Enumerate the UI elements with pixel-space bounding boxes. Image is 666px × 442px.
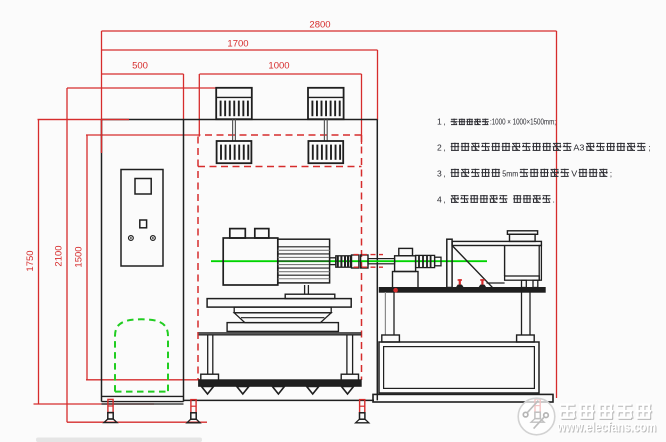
svg-text::1000 × 1000×1500mm;: :1000 × 1000×1500mm; [490,117,556,127]
svg-text:2: 2 [437,142,442,152]
svg-text:,: , [443,194,445,204]
svg-text:1000: 1000 [268,61,289,72]
svg-text:A3: A3 [573,142,584,152]
svg-text:1750: 1750 [25,250,36,271]
svg-text:2100: 2100 [54,245,65,266]
svg-text:www.elecfans.com: www.elecfans.com [556,419,656,435]
svg-text:;: ; [610,168,612,178]
svg-text:,: , [443,168,445,178]
svg-text:500: 500 [132,61,148,72]
svg-text:2800: 2800 [309,20,330,31]
svg-text:,: , [443,117,445,127]
svg-text:1500: 1500 [74,246,85,267]
svg-text:V: V [571,168,577,178]
svg-text:1: 1 [437,117,442,127]
svg-text:3: 3 [437,168,442,178]
svg-text:1700: 1700 [227,39,248,50]
svg-text:,: , [443,142,445,152]
svg-text:5mm: 5mm [502,168,518,178]
svg-text:.: . [553,194,555,204]
svg-text:4: 4 [437,194,442,204]
svg-text:;: ; [648,142,650,152]
